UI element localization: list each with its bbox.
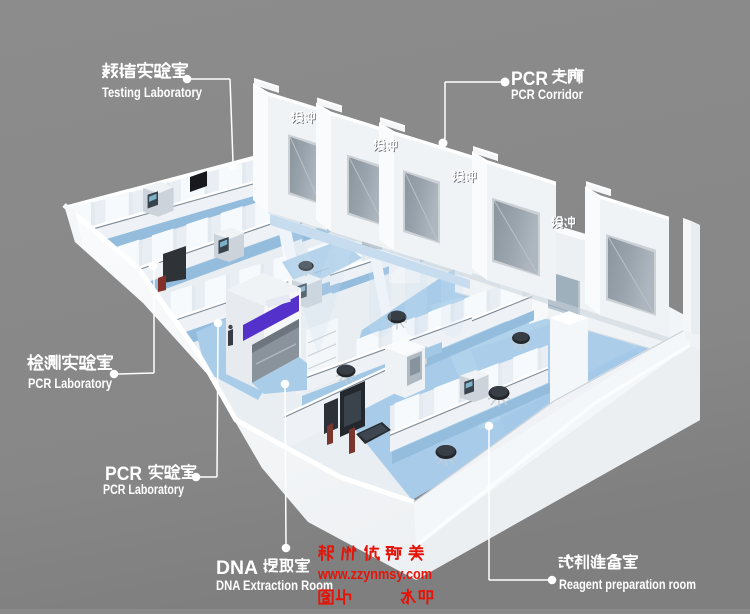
svg-text:Reagent preparation room: Reagent preparation room [559, 576, 696, 592]
svg-text:PCR Laboratory: PCR Laboratory [103, 482, 184, 497]
svg-text:DNA Extraction Room: DNA Extraction Room [216, 578, 333, 593]
svg-text:PCR Corridor: PCR Corridor [511, 86, 583, 102]
svg-text:Testing Laboratory: Testing Laboratory [102, 84, 202, 100]
svg-text:DNA: DNA [216, 557, 258, 579]
svg-text:www.zzynmsy.com: www.zzynmsy.com [317, 567, 432, 583]
svg-text:PCR Laboratory: PCR Laboratory [28, 376, 112, 391]
